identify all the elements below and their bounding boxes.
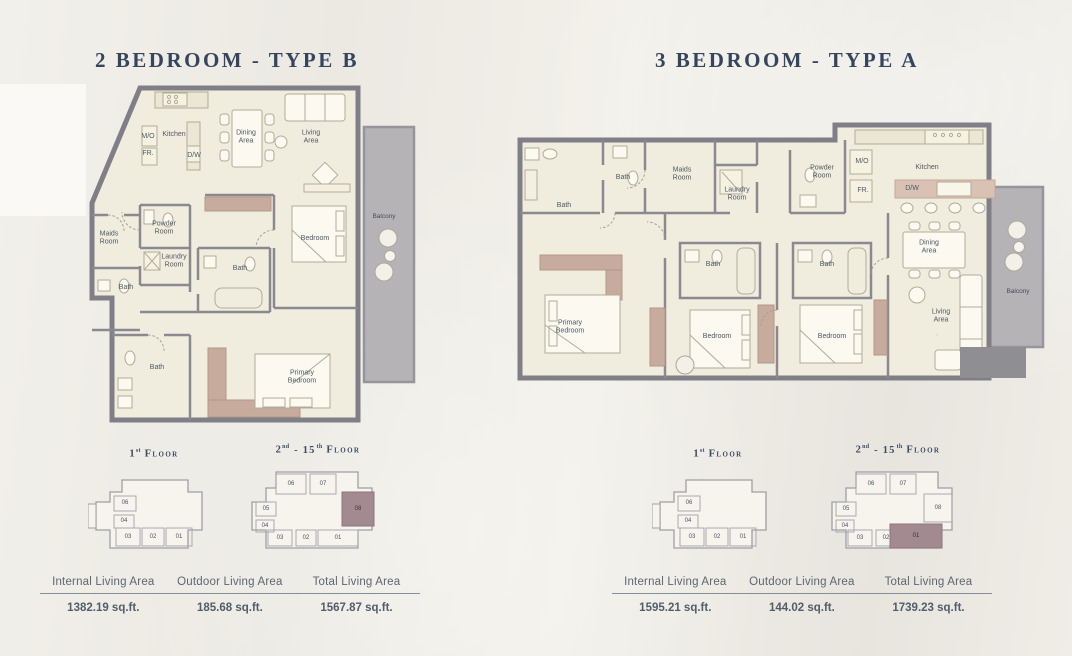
stat-label: Outdoor Living Area <box>167 576 294 588</box>
room-label-kitchen-a: Kitchen <box>915 164 938 172</box>
room-label-mo-a: M/O <box>855 158 868 166</box>
floor-label-b-upper: 2nd - 15th Floor <box>246 444 390 456</box>
room-label-fr: FR. <box>142 150 153 158</box>
room-label-maids: Maids Room <box>92 231 126 248</box>
keyplan-unit: 02 <box>303 535 310 541</box>
keyplan-unit-highlighted: 08 <box>355 506 362 512</box>
keyplan-unit: 04 <box>121 518 128 524</box>
room-label-bath1: Bath <box>119 284 133 292</box>
keyplan-unit: 04 <box>685 518 692 524</box>
stat-value: 1382.19 sq.ft. <box>40 602 167 614</box>
room-label-bath2: Bath <box>233 265 247 273</box>
room-label-laundry: Laundry Room <box>154 254 194 271</box>
keyplan-unit: 05 <box>843 506 850 512</box>
keyplan-unit-highlighted: 01 <box>913 533 920 539</box>
stat-label: Total Living Area <box>865 576 992 588</box>
room-label-kitchen: Kitchen <box>162 131 185 139</box>
keyplan-unit: 03 <box>125 534 132 540</box>
stat-label: Internal Living Area <box>612 576 739 588</box>
area-stats-type-b: Internal Living Area Outdoor Living Area… <box>40 576 420 614</box>
keyplan-unit: 04 <box>262 523 269 529</box>
room-label-maids-a: Maids Room <box>665 167 699 184</box>
room-label-living: Living Area <box>294 130 328 147</box>
keyplan-unit: 01 <box>176 534 183 540</box>
room-label-bath-r: Bath <box>820 261 834 269</box>
floor-label-a-upper: 2nd - 15th Floor <box>826 444 970 456</box>
floorplan-type-b: M/O Kitchen FR. D/W Dining Area Living A… <box>78 80 423 430</box>
keyplan-unit: 07 <box>320 481 327 487</box>
stat-value: 1595.21 sq.ft. <box>612 602 739 614</box>
brochure-page: 2 BEDROOM - TYPE B 3 BEDROOM - TYPE A <box>0 0 1072 656</box>
keyplan-unit: 07 <box>900 481 907 487</box>
floorplan-drawing-type-a <box>505 110 1050 390</box>
keyplan-a-upper-floors: 2nd - 15th Floor 06 07 05 04 08 03 02 01 <box>826 444 970 554</box>
floor-label-b-first: 1st Floor <box>88 448 220 460</box>
room-label-bath3: Bath <box>150 364 164 372</box>
keyplan-unit: 03 <box>689 534 696 540</box>
room-label-mo: M/O <box>141 133 154 141</box>
stat-value: 144.02 sq.ft. <box>739 602 866 614</box>
room-label-living-a: Living Area <box>924 309 958 326</box>
stat-label: Outdoor Living Area <box>739 576 866 588</box>
keyplan-unit: 05 <box>263 506 270 512</box>
room-label-bath-m: Bath <box>706 261 720 269</box>
room-label-balcony-b: Balcony <box>372 213 395 221</box>
plan-title-type-a: 3 BEDROOM - TYPE A <box>622 48 952 73</box>
room-label-laundry-a: Laundry Room <box>717 187 757 204</box>
keyplan-a-first-floor: 1st Floor 06 04 03 02 01 <box>652 448 784 554</box>
stat-value: 185.68 sq.ft. <box>167 602 294 614</box>
keyplan-unit: 06 <box>288 481 295 487</box>
room-label-dw: D/W <box>187 152 201 160</box>
room-label-powder-a: Powder Room <box>805 165 839 182</box>
floor-label-a-first: 1st Floor <box>652 448 784 460</box>
keyplan-unit: 02 <box>150 534 157 540</box>
ledge-block-a <box>960 347 1026 378</box>
floorplan-type-a: Bath Bath Maids Room Laundry Room Powder… <box>505 110 1050 390</box>
room-label-bedroom2: Bedroom <box>703 333 731 341</box>
keyplan-unit: 06 <box>122 500 129 506</box>
plan-title-type-b: 2 BEDROOM - TYPE B <box>62 48 392 73</box>
room-label-fr-a: FR. <box>857 187 868 195</box>
keyplan-drawing <box>652 464 784 554</box>
room-label-dw-a: D/W <box>905 185 919 193</box>
room-label-primary-a: Primary Bedroom <box>550 320 590 337</box>
keyplan-unit: 04 <box>842 523 849 529</box>
room-label-bedroom3: Bedroom <box>818 333 846 341</box>
balcony-b <box>364 127 414 382</box>
keyplan-unit: 02 <box>883 535 890 541</box>
keyplan-unit: 08 <box>935 505 942 511</box>
area-stats-type-a: Internal Living Area Outdoor Living Area… <box>612 576 992 614</box>
room-label-balcony-a: Balcony <box>1006 288 1029 296</box>
room-label-powder: Powder Room <box>147 221 181 238</box>
room-label-bedroom: Bedroom <box>301 235 329 243</box>
keyplan-unit: 06 <box>686 500 693 506</box>
keyplan-b-upper-floors: 2nd - 15th Floor 06 07 05 04 08 03 02 01 <box>246 444 390 554</box>
room-label-bath-l: Bath <box>557 202 571 210</box>
room-label-primary: Primary Bedroom <box>282 370 322 387</box>
stat-value: 1567.87 sq.ft. <box>293 602 420 614</box>
stat-label: Total Living Area <box>293 576 420 588</box>
keyplan-unit: 01 <box>335 535 342 541</box>
keyplan-unit: 02 <box>714 534 721 540</box>
keyplan-unit: 06 <box>868 481 875 487</box>
backdrop-slab <box>0 84 86 216</box>
keyplan-b-first-floor: 1st Floor 06 04 03 02 01 <box>88 448 220 554</box>
room-label-bath-s: Bath <box>616 174 630 182</box>
room-label-dining-a: Dining Area <box>912 240 946 257</box>
room-label-dining: Dining Area <box>229 130 263 147</box>
keyplan-drawing <box>88 464 220 554</box>
keyplan-unit: 01 <box>740 534 747 540</box>
stat-value: 1739.23 sq.ft. <box>865 602 992 614</box>
keyplan-unit: 03 <box>857 535 864 541</box>
balcony-a <box>990 187 1043 347</box>
keyplan-unit: 03 <box>277 535 284 541</box>
stat-label: Internal Living Area <box>40 576 167 588</box>
